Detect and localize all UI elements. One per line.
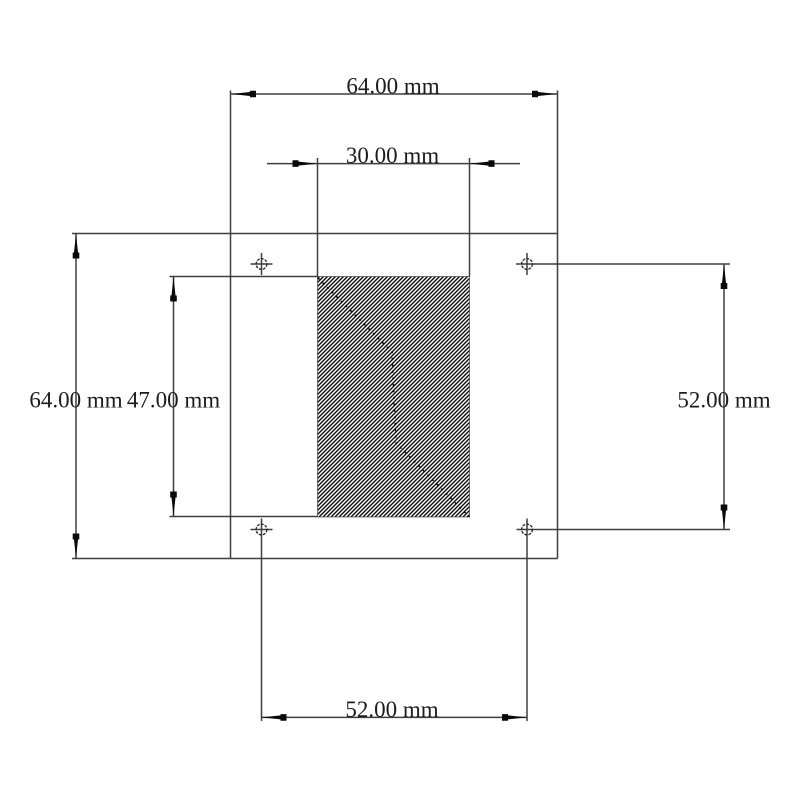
svg-text:52.00 mm: 52.00 mm	[677, 388, 770, 413]
svg-text:64.00 mm: 64.00 mm	[29, 388, 122, 413]
svg-text:30.00 mm: 30.00 mm	[346, 143, 439, 168]
svg-text:47.00 mm: 47.00 mm	[127, 388, 220, 413]
svg-text:52.00 mm: 52.00 mm	[345, 697, 438, 722]
svg-text:64.00 mm: 64.00 mm	[346, 74, 439, 99]
